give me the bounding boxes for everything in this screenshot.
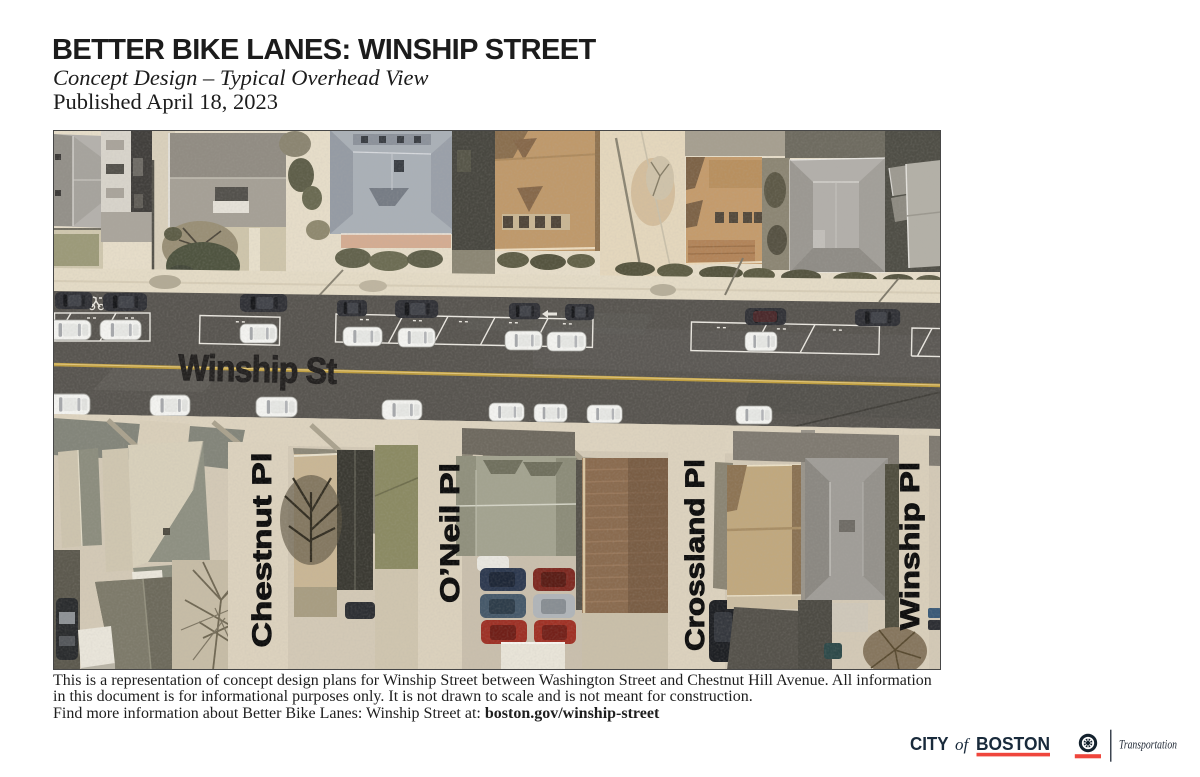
svg-text:Transportation: Transportation [1119,737,1177,751]
svg-text:CITY: CITY [910,733,949,754]
svg-text:BOSTON: BOSTON [976,733,1050,754]
svg-text:of: of [955,735,971,754]
